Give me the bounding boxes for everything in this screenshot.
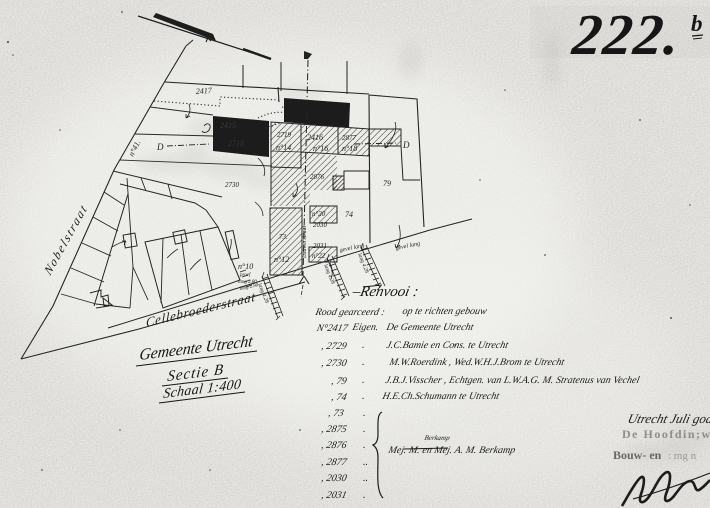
svg-text:.: . (362, 357, 365, 368)
svg-text:: mg n: : mg n (668, 450, 697, 462)
svg-text:, 73: , 73 (327, 408, 344, 419)
svg-text:J.B.J.Visscher , Echtgen. van: J.B.J.Visscher , Echtgen. van L.W.A.G. M… (384, 375, 640, 386)
svg-text:Utrecht Juli god.: Utrecht Juli god. (626, 411, 710, 426)
svg-text:.: . (362, 375, 365, 386)
svg-text:, 2875: , 2875 (320, 424, 347, 435)
svg-text:n°14: n°14 (276, 143, 291, 152)
svg-text:Eigen.: Eigen. (350, 322, 379, 333)
svg-text:2415: 2415 (220, 121, 236, 130)
svg-text:, 2729: , 2729 (320, 341, 347, 352)
svg-text:2416: 2416 (307, 133, 323, 142)
svg-text:.: . (363, 440, 366, 451)
svg-text:De Gemeente Utrecht: De Gemeente Utrecht (384, 322, 475, 333)
svg-text:n°20: n°20 (312, 210, 326, 218)
svg-text:De Hoofdin;w: De Hoofdin;w (622, 427, 710, 441)
svg-text:n°16: n°16 (313, 144, 328, 153)
svg-text:J.C.Bamie en Cons. te Utrecht: J.C.Bamie en Cons. te Utrecht (385, 340, 510, 351)
svg-text:222.: 222. (569, 2, 684, 67)
svg-text:proef: proef (239, 273, 251, 278)
svg-text:2730: 2730 (225, 181, 240, 189)
svg-text:79: 79 (383, 179, 391, 188)
svg-text:op te richten gebouw: op te richten gebouw (401, 306, 488, 317)
svg-text:2877: 2877 (342, 134, 357, 142)
svg-text:2876: 2876 (310, 173, 325, 181)
svg-text:.: . (363, 408, 366, 419)
svg-text:, 74: , 74 (330, 392, 347, 403)
svg-text:H.E.Ch.Schumann te Utrecht: H.E.Ch.Schumann te Utrecht (380, 391, 501, 402)
svg-text:–Renvooi :: –Renvooi : (350, 283, 420, 300)
svg-text:D: D (156, 142, 164, 152)
svg-text:n°12: n°12 (274, 255, 289, 264)
svg-text:D: D (402, 140, 410, 150)
svg-text:2030: 2030 (313, 221, 328, 229)
svg-text:, 2876: , 2876 (320, 440, 347, 451)
svg-text:74: 74 (345, 210, 353, 219)
svg-text:.: . (362, 391, 365, 402)
svg-text:.: . (363, 424, 366, 435)
svg-text:Mej. M. en Mej. A. M. Berkamp: Mej. M. en Mej. A. M. Berkamp (386, 445, 516, 456)
svg-text:, 2031: , 2031 (320, 490, 347, 501)
svg-text:n°10: n°10 (238, 262, 253, 271)
svg-text:, 2030: , 2030 (320, 473, 347, 484)
svg-text:Lauwerstraat: Lauwerstraat (302, 225, 308, 259)
svg-text:M.W.Roerdink , Wed.W.H.J.Brom: M.W.Roerdink , Wed.W.H.J.Brom te Utrecht (387, 357, 566, 368)
svg-text:, 2730: , 2730 (320, 358, 347, 369)
svg-text:..: .. (363, 473, 368, 484)
svg-text:73.: 73. (279, 233, 288, 241)
svg-text:n°22: n°22 (312, 252, 326, 260)
svg-text:.: . (363, 490, 366, 501)
svg-text:n°18: n°18 (342, 144, 357, 153)
svg-text:, 79: , 79 (330, 376, 347, 387)
svg-text:Berkamp: Berkamp (424, 434, 451, 442)
svg-text:2417: 2417 (196, 86, 214, 96)
svg-text:b: b (691, 11, 703, 36)
svg-text:..: .. (363, 457, 368, 468)
svg-text:N°2417: N°2417 (315, 323, 350, 334)
svg-text:Bouw- en: Bouw- en (613, 448, 662, 462)
svg-text:2031: 2031 (313, 242, 327, 250)
svg-text:Rood gearceerd :: Rood gearceerd : (313, 307, 386, 318)
svg-text:2718: 2718 (228, 139, 244, 148)
svg-text:2719: 2719 (277, 131, 292, 139)
svg-text:.: . (362, 340, 365, 351)
svg-text:, 2877: , 2877 (320, 457, 348, 468)
